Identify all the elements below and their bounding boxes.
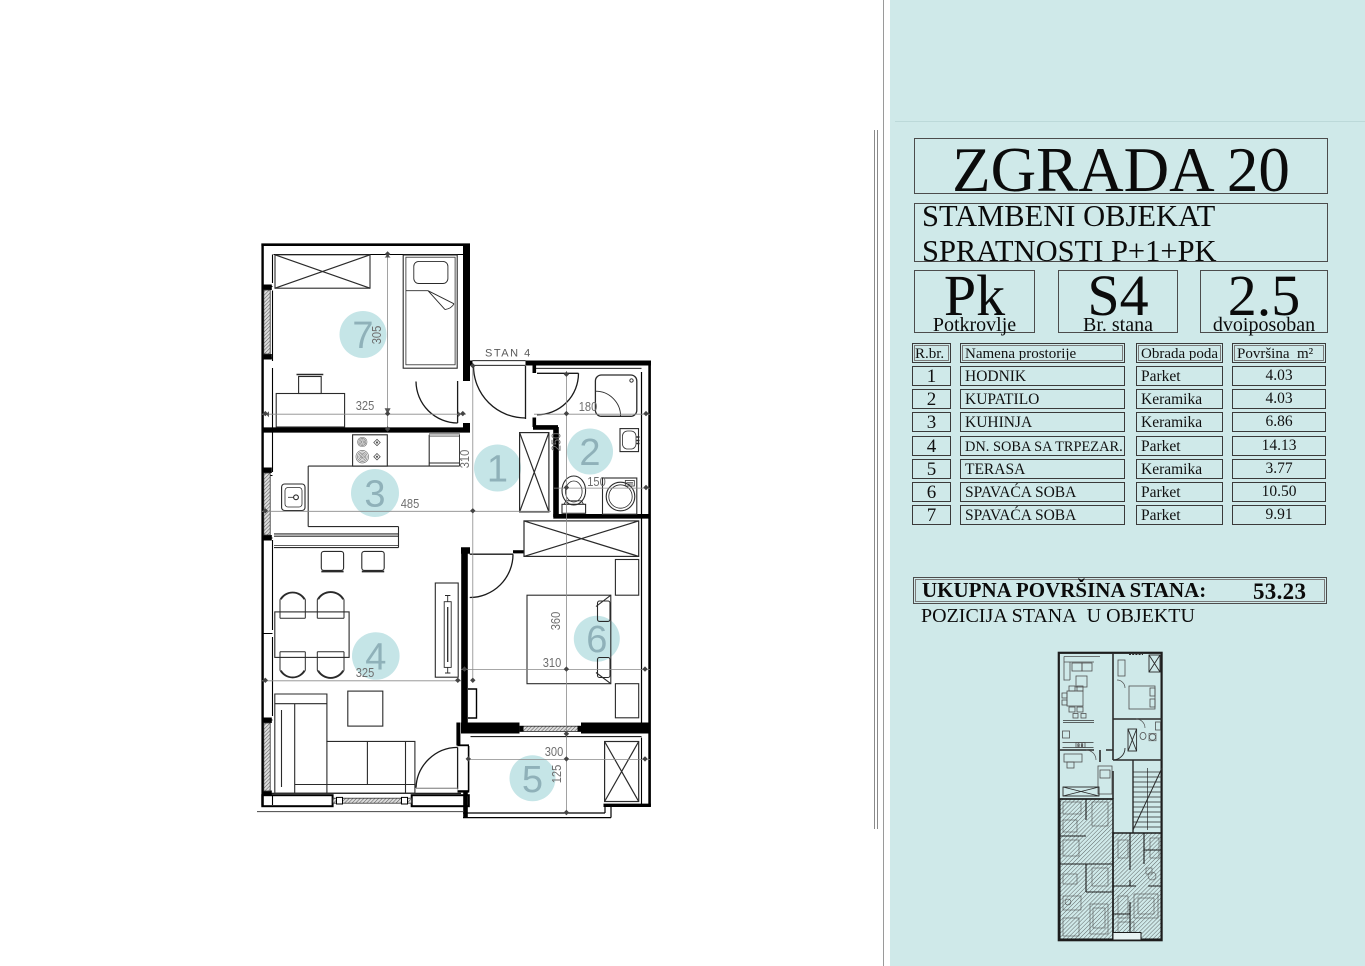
svg-text:250: 250 — [549, 433, 564, 452]
svg-text:2: 2 — [579, 432, 600, 474]
svg-text:310: 310 — [543, 655, 562, 670]
svg-text:485: 485 — [401, 496, 420, 511]
svg-text:360: 360 — [548, 612, 563, 631]
svg-text:125: 125 — [549, 765, 564, 784]
svg-text:5: 5 — [522, 759, 543, 801]
svg-text:6: 6 — [586, 619, 607, 661]
svg-text:325: 325 — [356, 665, 375, 680]
svg-text:300: 300 — [545, 744, 564, 759]
svg-text:STAN 4: STAN 4 — [485, 348, 532, 360]
svg-text:180: 180 — [579, 399, 598, 414]
svg-text:305: 305 — [369, 326, 384, 345]
svg-text:325: 325 — [356, 398, 375, 413]
svg-text:1: 1 — [487, 449, 508, 491]
svg-text:3: 3 — [364, 474, 385, 516]
svg-text:150: 150 — [587, 474, 606, 489]
svg-text:310: 310 — [457, 450, 472, 469]
